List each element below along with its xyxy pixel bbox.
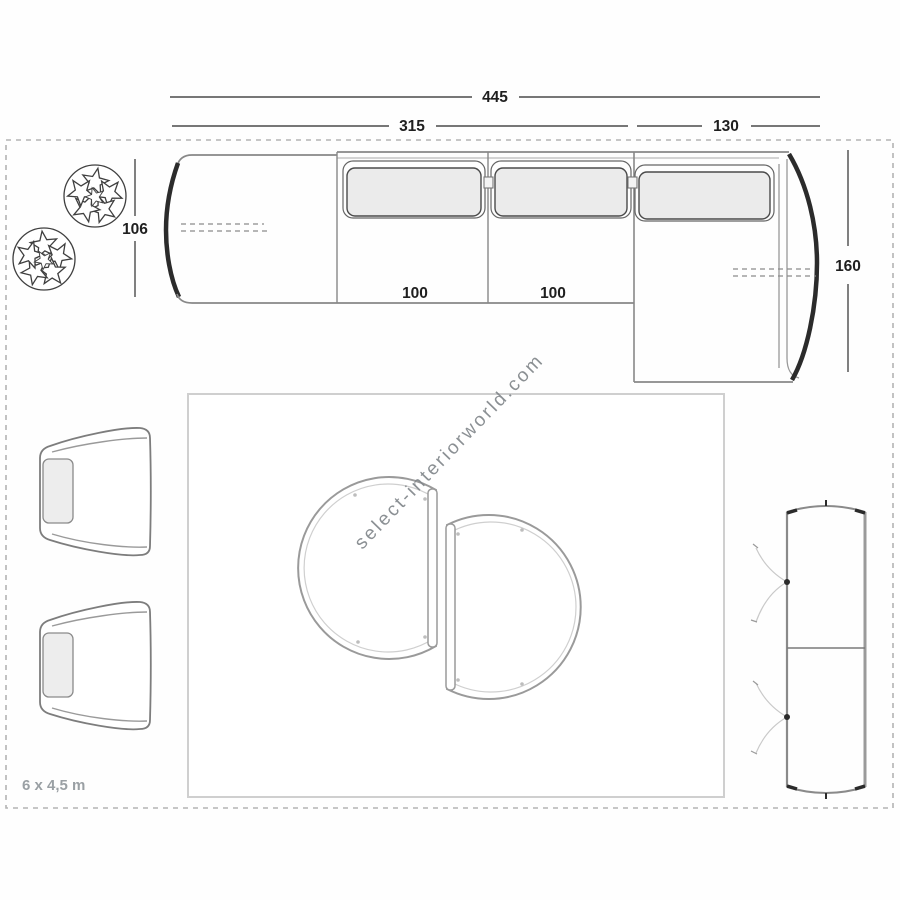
dimension-left-span: 315 xyxy=(172,118,628,135)
dim-label-chaise-depth: 160 xyxy=(835,258,861,275)
door-hinge-dot xyxy=(784,579,790,585)
table-flat-edge xyxy=(428,489,437,647)
back-cushion-2 xyxy=(491,161,631,218)
dimension-depth-left: 106 xyxy=(122,159,148,297)
seat-width-label-2: 100 xyxy=(540,285,566,302)
sideboard-corner-caps xyxy=(787,500,865,799)
back-cushion-1 xyxy=(343,161,485,218)
plant-2 xyxy=(13,228,77,290)
dim-label-left-span: 315 xyxy=(399,118,425,135)
sideboard xyxy=(751,500,865,799)
dim-label-depth-left: 106 xyxy=(122,221,148,238)
cushion xyxy=(639,172,770,219)
cushion-connector xyxy=(484,177,493,188)
table-flat-edge xyxy=(446,524,455,690)
sideboard-top-edge xyxy=(787,506,865,512)
armchair-2 xyxy=(40,602,151,729)
floor-plan-page: 445 315 130 106 160 xyxy=(0,0,900,900)
door-hinge-dot xyxy=(784,714,790,720)
room-size-label: 6 x 4,5 m xyxy=(22,777,85,794)
cushion xyxy=(347,168,481,216)
cushion-connector xyxy=(628,177,637,188)
dimension-chaise-depth: 160 xyxy=(835,150,861,372)
armchair-shape xyxy=(40,602,151,729)
armchair-shape xyxy=(40,428,151,555)
dimension-right-span: 130 xyxy=(637,118,820,135)
door-swing-arcs xyxy=(751,544,787,754)
sofa-dashed-lines xyxy=(181,224,816,276)
dim-label-overall-width: 445 xyxy=(482,89,508,106)
seat-width-label-1: 100 xyxy=(402,285,428,302)
armchair-1 xyxy=(40,428,151,555)
plant-1 xyxy=(62,165,128,227)
back-cushion-3 xyxy=(635,165,774,221)
cushion xyxy=(495,168,627,216)
dim-label-right-span: 130 xyxy=(713,118,739,135)
sofa: 100 100 xyxy=(166,152,817,382)
sofa-left-top-edge xyxy=(177,155,337,166)
sideboard-bottom-edge xyxy=(787,787,865,793)
sofa-right-arm xyxy=(789,154,817,380)
dimension-overall-width: 445 xyxy=(170,89,820,106)
sofa-left-arm xyxy=(166,163,179,297)
